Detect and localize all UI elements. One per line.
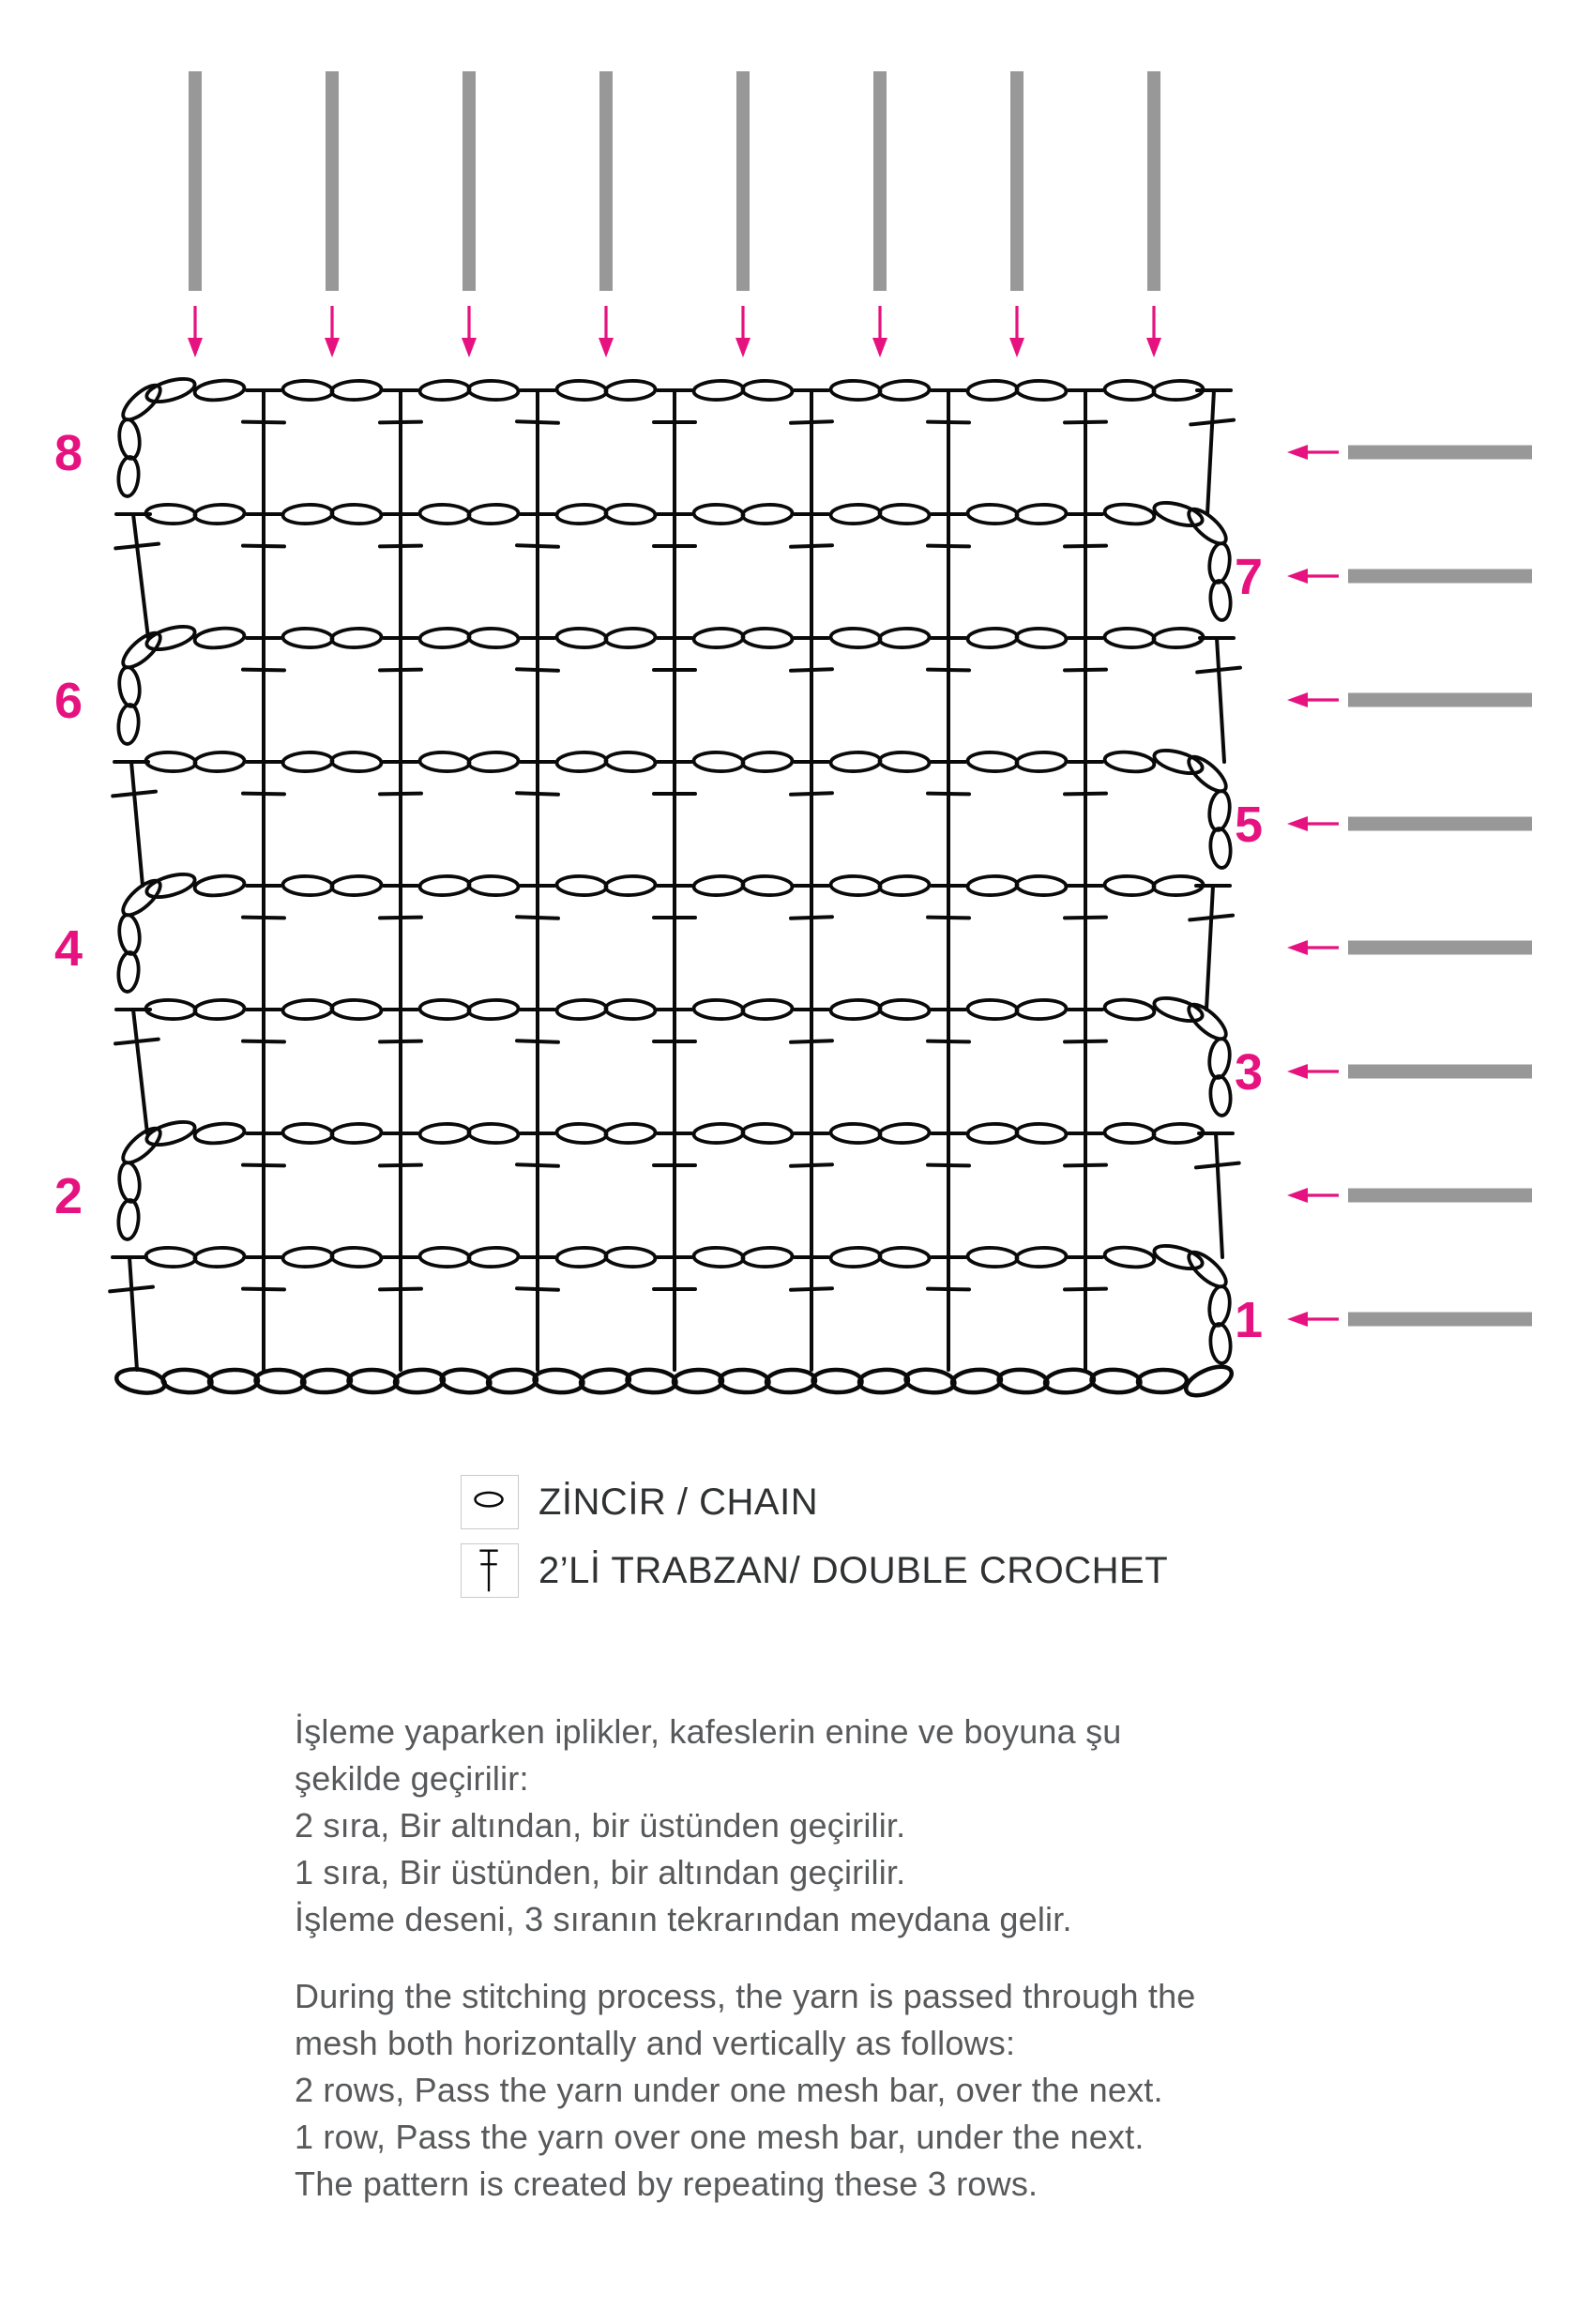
- row-number: 3: [1235, 1044, 1263, 1101]
- double-crochet-stitch: [380, 514, 421, 638]
- chain-stitch-pair: [1104, 875, 1204, 896]
- mesh-row-4: [117, 870, 1233, 1010]
- legend-item-double-crochet: 2’Lİ TRABZAN/ DOUBLE CROCHET: [461, 1543, 1168, 1598]
- note-english: During the stitching process, the yarn i…: [295, 1973, 1477, 2208]
- left-arrow-icon: [1287, 569, 1339, 584]
- chain-stitch-pair: [282, 1247, 382, 1268]
- double-crochet-stitch: [1065, 638, 1106, 762]
- chain-stitch-pair: [693, 752, 793, 772]
- double-crochet-stitch: [928, 1010, 969, 1133]
- chain-stitch-pair: [419, 628, 519, 648]
- row-number: 2: [54, 1168, 83, 1224]
- warp-bar: [1147, 71, 1160, 291]
- warp-bar: [1010, 71, 1024, 291]
- turning-chain: [1184, 504, 1233, 621]
- mesh-row-6: [117, 622, 1240, 762]
- left-arrow-icon: [1287, 1312, 1339, 1327]
- chain-stitch-pair: [967, 999, 1067, 1020]
- down-arrow-icon: [599, 306, 614, 357]
- row-number: 6: [54, 673, 83, 729]
- mesh-row-1: [110, 1241, 1232, 1370]
- warp-bar: [462, 71, 476, 291]
- double-crochet-stitch: [243, 1133, 284, 1257]
- double-crochet-stitch: [654, 886, 695, 1010]
- double-crochet-stitch: [654, 1010, 695, 1133]
- turning-chain: [117, 628, 166, 745]
- double-crochet-icon: [462, 1543, 518, 1598]
- turning-chain: [117, 380, 166, 497]
- double-crochet-stitch: [928, 1133, 969, 1257]
- weft-bar: [1348, 1313, 1532, 1327]
- warp-bar: [326, 71, 339, 291]
- down-arrow-icon: [735, 306, 751, 357]
- legend-symbol-box: [461, 1475, 519, 1529]
- double-crochet-stitch: [113, 762, 156, 886]
- double-crochet-stitch: [517, 1133, 558, 1257]
- down-arrow-icon: [1146, 306, 1161, 357]
- double-crochet-stitch: [1196, 1133, 1239, 1257]
- note-turkish: İşleme yaparken iplikler, kafeslerin eni…: [295, 1709, 1477, 1943]
- warp-bar: [189, 71, 202, 291]
- mesh-row-3: [115, 994, 1232, 1133]
- double-crochet-stitch: [928, 886, 969, 1010]
- double-crochet-stitch: [517, 1257, 558, 1370]
- chain-stitch-pair: [693, 999, 793, 1020]
- chain-stitch-pair: [419, 504, 519, 524]
- chain-stitch-pair: [830, 875, 930, 896]
- chain-stitch-pair: [556, 628, 656, 648]
- weft-bars: [1287, 445, 1532, 1327]
- double-crochet-stitch: [380, 886, 421, 1010]
- double-crochet-stitch: [654, 638, 695, 762]
- double-crochet-stitch: [243, 638, 284, 762]
- chain-stitch-pair: [282, 999, 382, 1020]
- double-crochet-stitch: [243, 762, 284, 886]
- double-crochet-stitch: [1197, 638, 1240, 762]
- double-crochet-stitch: [517, 390, 558, 514]
- chain-stitch-pair: [967, 628, 1067, 648]
- double-crochet-stitch: [1065, 1133, 1106, 1257]
- crochet-chart: 86427531: [0, 0, 1577, 1464]
- chain-stitch-pair: [693, 504, 793, 524]
- chain-stitch-pair: [830, 1247, 930, 1268]
- legend-label-double-crochet: 2’Lİ TRABZAN/ DOUBLE CROCHET: [538, 1550, 1168, 1592]
- chain-stitch-pair: [830, 504, 930, 524]
- legend-label-chain: ZİNCİR / CHAIN: [538, 1481, 818, 1524]
- weft-bar: [1348, 570, 1532, 584]
- double-crochet-stitch: [380, 390, 421, 514]
- turning-chain: [117, 875, 166, 993]
- chain-stitch-pair: [693, 1247, 793, 1268]
- down-arrow-icon: [325, 306, 340, 357]
- chain-stitch-pair: [693, 380, 793, 401]
- chain-stitch-pair: [556, 875, 656, 896]
- down-arrow-icon: [1009, 306, 1024, 357]
- chain-stitch-pair: [830, 628, 930, 648]
- double-crochet-stitch: [110, 1257, 153, 1370]
- chain-stitch-pair: [419, 875, 519, 896]
- chain-stitch-pair: [967, 1123, 1067, 1144]
- chain-stitch-pair: [419, 999, 519, 1020]
- double-crochet-stitch: [1190, 390, 1234, 514]
- left-arrow-icon: [1287, 816, 1339, 831]
- chain-stitch-pair: [556, 1247, 656, 1268]
- double-crochet-stitch: [791, 1257, 832, 1370]
- double-crochet-stitch: [928, 514, 969, 638]
- chain-stitch-pair: [1104, 1123, 1204, 1144]
- weft-bar: [1348, 446, 1532, 460]
- chain-stitch-pair: [282, 504, 382, 524]
- double-crochet-stitch: [1065, 1010, 1106, 1133]
- mesh-row-7: [115, 498, 1232, 638]
- double-crochet-stitch: [517, 638, 558, 762]
- chain-stitch-pair: [419, 752, 519, 772]
- chain-stitch-pair: [830, 380, 930, 401]
- double-crochet-stitch: [115, 514, 159, 638]
- double-crochet-stitch: [928, 1257, 969, 1370]
- chain-stitch-pair: [967, 752, 1067, 772]
- double-crochet-stitch: [380, 1133, 421, 1257]
- double-crochet-stitch: [1065, 886, 1106, 1010]
- double-crochet-stitch: [380, 762, 421, 886]
- chain-stitch-pair: [556, 752, 656, 772]
- chain-stitch-pair: [693, 628, 793, 648]
- turning-chain: [1184, 1247, 1233, 1364]
- warp-bar: [736, 71, 750, 291]
- weft-bar: [1348, 693, 1532, 707]
- chain-stitch-pair: [1104, 380, 1204, 401]
- chain-stitch-pair: [693, 1123, 793, 1144]
- warp-bar: [873, 71, 887, 291]
- row-number: 1: [1235, 1292, 1263, 1348]
- row-number: 4: [54, 920, 83, 977]
- double-crochet-stitch: [654, 1257, 695, 1370]
- weft-bar: [1348, 941, 1532, 955]
- double-crochet-stitch: [243, 390, 284, 514]
- turning-chain: [1184, 999, 1233, 1116]
- chain-stitch-pair: [830, 1123, 930, 1144]
- chain-stitch-pair: [419, 1247, 519, 1268]
- chain-stitch-pair: [556, 380, 656, 401]
- mesh-row-5: [113, 746, 1232, 886]
- chain-stitch-pair: [282, 380, 382, 401]
- chain-icon: [462, 1475, 518, 1529]
- double-crochet-stitch: [791, 1133, 832, 1257]
- double-crochet-stitch: [380, 1010, 421, 1133]
- turning-chain: [1184, 752, 1233, 869]
- row-number: 8: [54, 425, 83, 481]
- double-crochet-stitch: [791, 514, 832, 638]
- double-crochet-stitch: [517, 1010, 558, 1133]
- chain-stitch-pair: [967, 875, 1067, 896]
- weft-bar: [1348, 1189, 1532, 1203]
- double-crochet-stitch: [928, 638, 969, 762]
- chain-stitch-pair: [556, 999, 656, 1020]
- mesh-row-8: [117, 374, 1234, 514]
- left-arrow-icon: [1287, 940, 1339, 955]
- turning-chain: [117, 1123, 166, 1240]
- double-crochet-stitch: [380, 638, 421, 762]
- down-arrow-icon: [872, 306, 887, 357]
- down-arrow-icon: [462, 306, 477, 357]
- double-crochet-stitch: [791, 762, 832, 886]
- double-crochet-stitch: [243, 1010, 284, 1133]
- double-crochet-stitch: [517, 886, 558, 1010]
- chain-stitch-pair: [967, 1247, 1067, 1268]
- warp-bar: [599, 71, 613, 291]
- double-crochet-stitch: [115, 1010, 159, 1133]
- chain-stitch-pair: [693, 875, 793, 896]
- warp-bars: [188, 71, 1161, 357]
- double-crochet-stitch: [1190, 886, 1233, 1010]
- down-arrow-icon: [188, 306, 203, 357]
- double-crochet-stitch: [654, 514, 695, 638]
- chain-stitch-pair: [419, 380, 519, 401]
- double-crochet-stitch: [791, 886, 832, 1010]
- chain-stitch-pair: [145, 999, 245, 1020]
- double-crochet-stitch: [517, 514, 558, 638]
- left-arrow-icon: [1287, 445, 1339, 460]
- left-arrow-icon: [1287, 692, 1339, 707]
- double-crochet-stitch: [517, 762, 558, 886]
- chain-stitch-pair: [967, 504, 1067, 524]
- legend-item-chain: ZİNCİR / CHAIN: [461, 1475, 818, 1529]
- row-number: 5: [1235, 797, 1263, 853]
- chain-stitch-pair: [145, 1247, 245, 1268]
- chain-stitch-pair: [282, 628, 382, 648]
- chain-stitch-pair: [282, 875, 382, 896]
- row-number: 7: [1235, 549, 1263, 605]
- double-crochet-stitch: [791, 1010, 832, 1133]
- chain-stitch-pair: [145, 504, 245, 524]
- double-crochet-stitch: [243, 886, 284, 1010]
- chain-stitch-pair: [556, 504, 656, 524]
- double-crochet-stitch: [654, 762, 695, 886]
- left-arrow-icon: [1287, 1188, 1339, 1203]
- chain-stitch-pair: [282, 1123, 382, 1144]
- chain-stitch-pair: [967, 380, 1067, 401]
- double-crochet-stitch: [928, 390, 969, 514]
- double-crochet-stitch: [1065, 514, 1106, 638]
- chain-stitch-pair: [556, 1123, 656, 1144]
- double-crochet-stitch: [654, 1133, 695, 1257]
- double-crochet-stitch: [791, 638, 832, 762]
- mesh-row-2: [117, 1117, 1239, 1257]
- chain-stitch-pair: [1104, 628, 1204, 648]
- double-crochet-stitch: [1065, 762, 1106, 886]
- page: { "colors": { "pink": "#E6127F", "gray":…: [0, 0, 1577, 2324]
- double-crochet-stitch: [243, 514, 284, 638]
- double-crochet-stitch: [1065, 390, 1106, 514]
- double-crochet-stitch: [243, 1257, 284, 1370]
- chain-stitch-pair: [145, 752, 245, 772]
- left-arrow-icon: [1287, 1064, 1339, 1079]
- double-crochet-stitch: [654, 390, 695, 514]
- weft-bar: [1348, 1065, 1532, 1079]
- double-crochet-stitch: [791, 390, 832, 514]
- double-crochet-stitch: [1065, 1257, 1106, 1370]
- weft-bar: [1348, 817, 1532, 831]
- chain-stitch-pair: [830, 999, 930, 1020]
- chain-stitch-pair: [830, 752, 930, 772]
- chain-stitch-pair: [282, 752, 382, 772]
- chain-stitch-pair: [419, 1123, 519, 1144]
- double-crochet-stitch: [380, 1257, 421, 1370]
- legend-symbol-box: [461, 1543, 519, 1598]
- double-crochet-stitch: [928, 762, 969, 886]
